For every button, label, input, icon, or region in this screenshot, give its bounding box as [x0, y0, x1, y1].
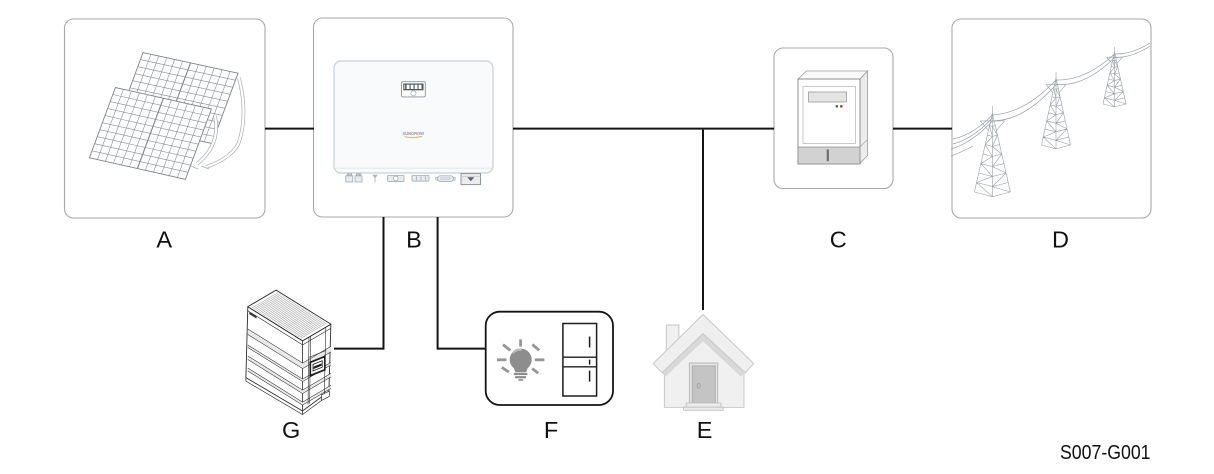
svg-text:S007-G001: S007-G001: [1060, 442, 1151, 464]
svg-text:SUNGROW: SUNGROW: [403, 131, 425, 136]
svg-text:A: A: [156, 227, 172, 253]
svg-text:F: F: [544, 417, 558, 443]
svg-text:G: G: [282, 417, 300, 443]
svg-text:C: C: [830, 227, 847, 253]
svg-text:B: B: [406, 227, 422, 253]
svg-text:D: D: [1052, 227, 1069, 253]
svg-text:E: E: [697, 417, 713, 443]
